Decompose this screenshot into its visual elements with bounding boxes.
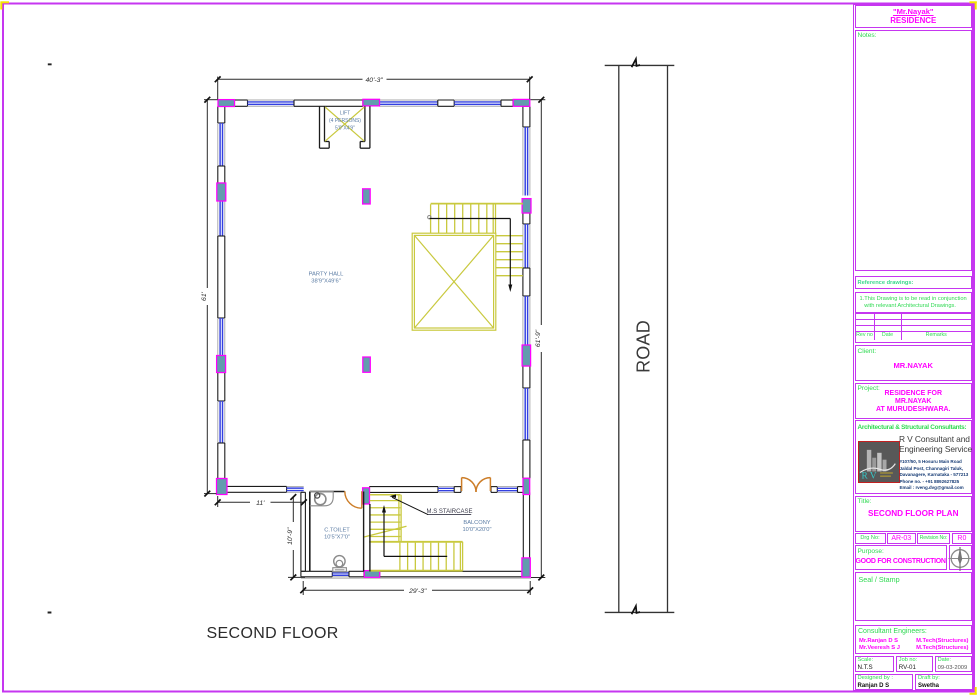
svg-text:SECOND FLOOR: SECOND FLOOR xyxy=(207,625,339,642)
svg-text:C.TOILET: C.TOILET xyxy=(324,527,350,533)
svg-text:10'0"X20'0": 10'0"X20'0" xyxy=(463,527,492,533)
svg-text:5'0"X4'9": 5'0"X4'9" xyxy=(335,125,355,131)
svg-text:LIFT: LIFT xyxy=(340,111,350,117)
svg-text:M.S STAIRCASE: M.S STAIRCASE xyxy=(427,509,473,515)
svg-text:PARTY HALL: PARTY HALL xyxy=(309,271,345,277)
svg-text:38'9"X49'6": 38'9"X49'6" xyxy=(311,278,341,284)
svg-text:61'-9": 61'-9" xyxy=(535,329,542,347)
svg-text:11': 11' xyxy=(256,500,265,507)
svg-text:BALCONY: BALCONY xyxy=(463,520,490,526)
svg-text:61': 61' xyxy=(201,291,208,301)
svg-text:40'-3": 40'-3" xyxy=(366,77,384,84)
svg-text:R V: R V xyxy=(861,471,876,481)
svg-text:ROAD: ROAD xyxy=(634,320,654,373)
svg-text:10'-9": 10'-9" xyxy=(287,527,294,545)
svg-text:10'5"X7'0": 10'5"X7'0" xyxy=(324,534,350,540)
svg-text:29'-3": 29'-3" xyxy=(408,588,427,595)
svg-text:(4 PERSONS): (4 PERSONS) xyxy=(329,118,361,124)
